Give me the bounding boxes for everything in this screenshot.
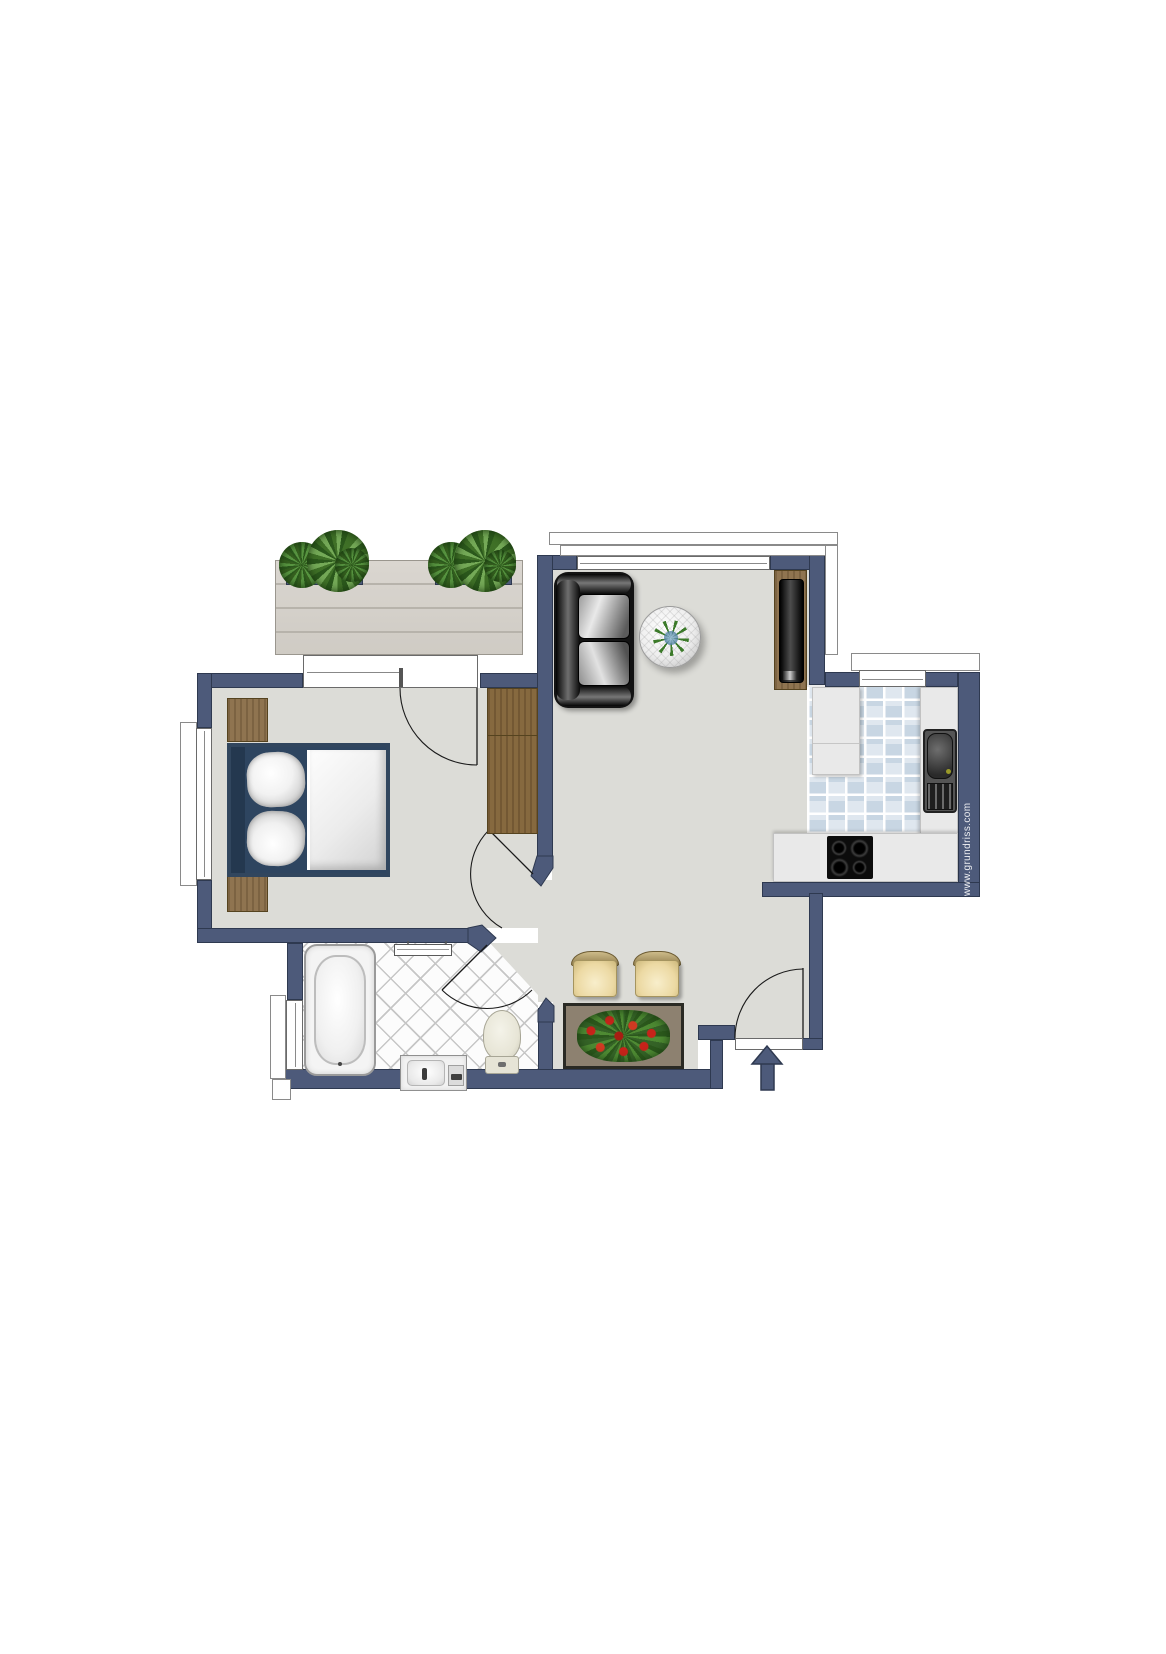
- wall-tip-bathroom-right: [538, 998, 554, 1022]
- bed-pillow: [246, 751, 307, 809]
- tv-stand: [783, 671, 797, 680]
- cooktop: [827, 836, 873, 879]
- vanity-sink: [400, 1055, 467, 1091]
- toilet: [481, 1010, 523, 1074]
- chair-seat: [635, 960, 679, 997]
- sofa: [554, 572, 634, 708]
- toilet-flush-button: [498, 1062, 506, 1067]
- balcony-door-arc: [400, 688, 477, 765]
- round-glass-table: [639, 606, 701, 668]
- entrance-arrow-shaft: [761, 1063, 774, 1090]
- wall-tip-living-left: [531, 856, 553, 886]
- dining-table: [563, 1003, 684, 1069]
- toilet-bowl: [483, 1010, 521, 1060]
- side-unit-slot: [451, 1074, 462, 1080]
- flower-arrangement: [577, 1010, 670, 1062]
- bathroom-door-arc: [442, 990, 532, 1008]
- tv-sideboard: [774, 570, 807, 690]
- burner-icon: [830, 858, 849, 877]
- double-bed: [227, 743, 390, 877]
- tv: [779, 579, 804, 683]
- wall-tip-bathroom-top: [468, 925, 496, 952]
- bathtub: [304, 944, 376, 1076]
- watermark-text: www.grundriss.com: [962, 788, 980, 896]
- bed-pillow: [246, 810, 306, 867]
- dining-chair: [632, 951, 682, 998]
- bed-mattress: [307, 750, 386, 870]
- floor-plan: www.grundriss.com: [0, 0, 1166, 1654]
- bathtub-basin: [314, 955, 366, 1065]
- door-swing-overlay: [0, 0, 1166, 1654]
- bedroom-door-arc: [471, 830, 502, 928]
- entrance-arrow-icon: [752, 1046, 782, 1064]
- dining-chair: [570, 951, 620, 998]
- cabinet-divider: [813, 743, 859, 744]
- vanity-faucet-icon: [422, 1068, 427, 1080]
- kitchen-cabinet: [812, 687, 860, 775]
- entrance-door-arc: [735, 969, 803, 1038]
- sink-drainboard: [927, 783, 953, 810]
- chair-seat: [573, 960, 617, 997]
- vanity-side-unit: [448, 1065, 464, 1086]
- kitchen-sink: [923, 729, 957, 813]
- radiator: [394, 944, 452, 956]
- sofa-cushion: [578, 594, 630, 639]
- sink-faucet-icon: [946, 769, 951, 774]
- burner-icon: [831, 840, 847, 856]
- nightstand: [227, 698, 268, 742]
- burner-icon: [852, 860, 867, 875]
- burner-icon: [850, 839, 869, 858]
- bathroom-corner-floor: [490, 943, 538, 995]
- wardrobe: [487, 688, 538, 834]
- bed-headboard: [231, 747, 245, 873]
- sofa-backrest: [556, 580, 580, 700]
- sofa-cushion: [578, 641, 630, 686]
- wardrobe-divider: [488, 735, 537, 736]
- bathtub-drain-icon: [338, 1062, 342, 1066]
- radiator-bar: [397, 949, 449, 950]
- bedroom-door-leaf: [489, 830, 533, 874]
- table-plant-center: [664, 631, 678, 645]
